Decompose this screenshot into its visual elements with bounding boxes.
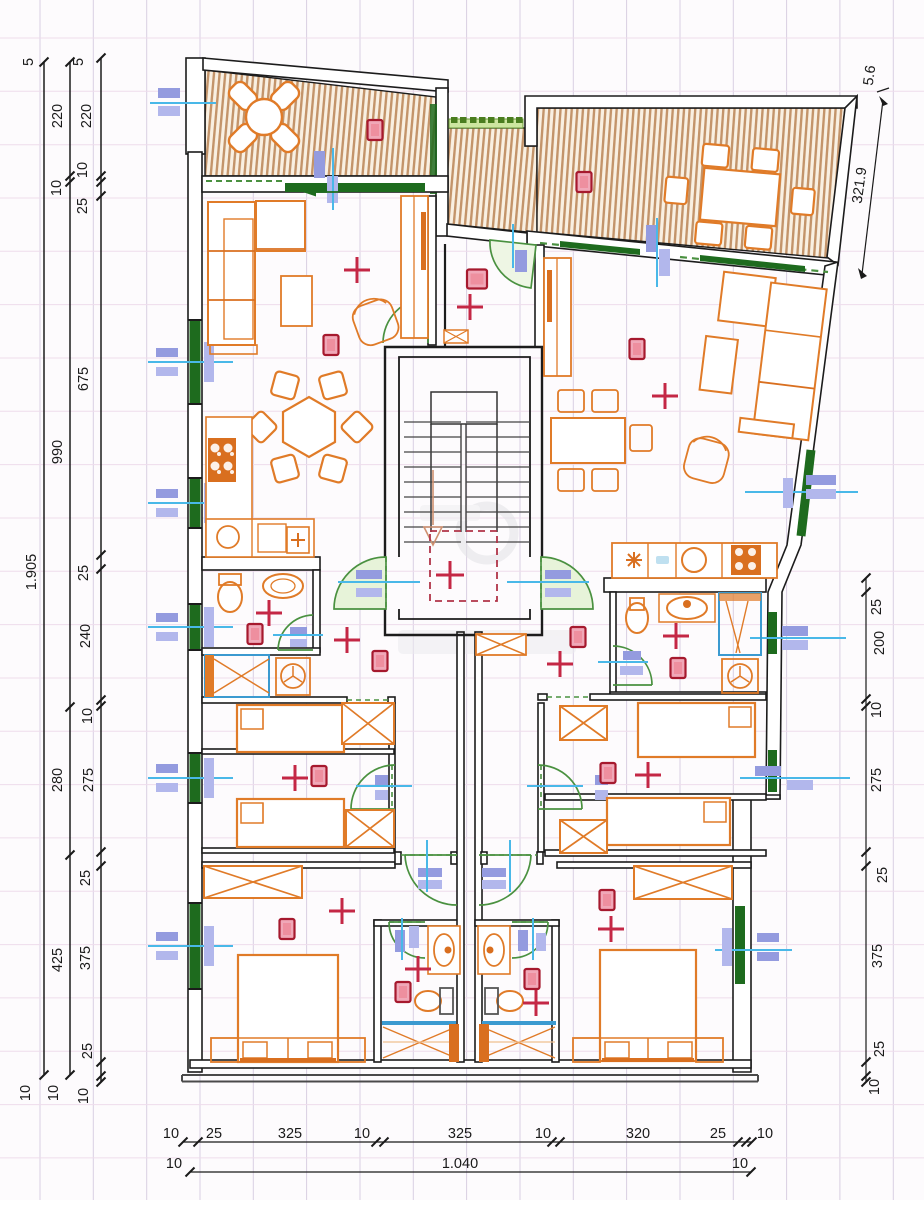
svg-text:375: 375 — [870, 944, 886, 968]
svg-text:25: 25 — [80, 1043, 96, 1059]
svg-text:220: 220 — [50, 104, 66, 128]
svg-text:25: 25 — [872, 1041, 888, 1057]
svg-text:320: 320 — [626, 1126, 650, 1142]
svg-text:10: 10 — [49, 180, 65, 196]
svg-text:25: 25 — [869, 599, 885, 615]
svg-text:5: 5 — [21, 58, 37, 66]
svg-text:375: 375 — [78, 946, 94, 970]
svg-text:220: 220 — [79, 104, 95, 128]
svg-text:10: 10 — [757, 1126, 773, 1142]
svg-text:280: 280 — [50, 768, 66, 792]
svg-text:25: 25 — [75, 198, 91, 214]
svg-text:5: 5 — [71, 58, 87, 66]
svg-text:10: 10 — [732, 1156, 748, 1172]
svg-text:325: 325 — [448, 1126, 472, 1142]
svg-text:425: 425 — [50, 948, 66, 972]
svg-text:10: 10 — [535, 1126, 551, 1142]
svg-text:10: 10 — [76, 1088, 92, 1104]
svg-text:10: 10 — [163, 1126, 179, 1142]
svg-text:1.040: 1.040 — [442, 1156, 478, 1172]
svg-text:25: 25 — [710, 1126, 726, 1142]
svg-text:10: 10 — [867, 1079, 883, 1095]
svg-text:200: 200 — [872, 631, 888, 655]
svg-text:275: 275 — [81, 768, 97, 792]
svg-text:325: 325 — [278, 1126, 302, 1142]
svg-text:990: 990 — [50, 440, 66, 464]
svg-text:25: 25 — [78, 870, 94, 886]
svg-text:10: 10 — [354, 1126, 370, 1142]
svg-text:10: 10 — [46, 1085, 62, 1101]
svg-text:240: 240 — [78, 624, 94, 648]
svg-text:10: 10 — [75, 162, 91, 178]
svg-text:25: 25 — [76, 565, 92, 581]
svg-text:10: 10 — [166, 1156, 182, 1172]
svg-text:5.6: 5.6 — [861, 64, 880, 86]
svg-text:25: 25 — [875, 867, 891, 883]
svg-text:10: 10 — [80, 708, 96, 724]
svg-text:10: 10 — [869, 702, 885, 718]
svg-text:10: 10 — [18, 1085, 34, 1101]
svg-text:675: 675 — [76, 367, 92, 391]
svg-text:1.905: 1.905 — [24, 554, 40, 590]
svg-text:25: 25 — [206, 1126, 222, 1142]
svg-text:275: 275 — [869, 768, 885, 792]
